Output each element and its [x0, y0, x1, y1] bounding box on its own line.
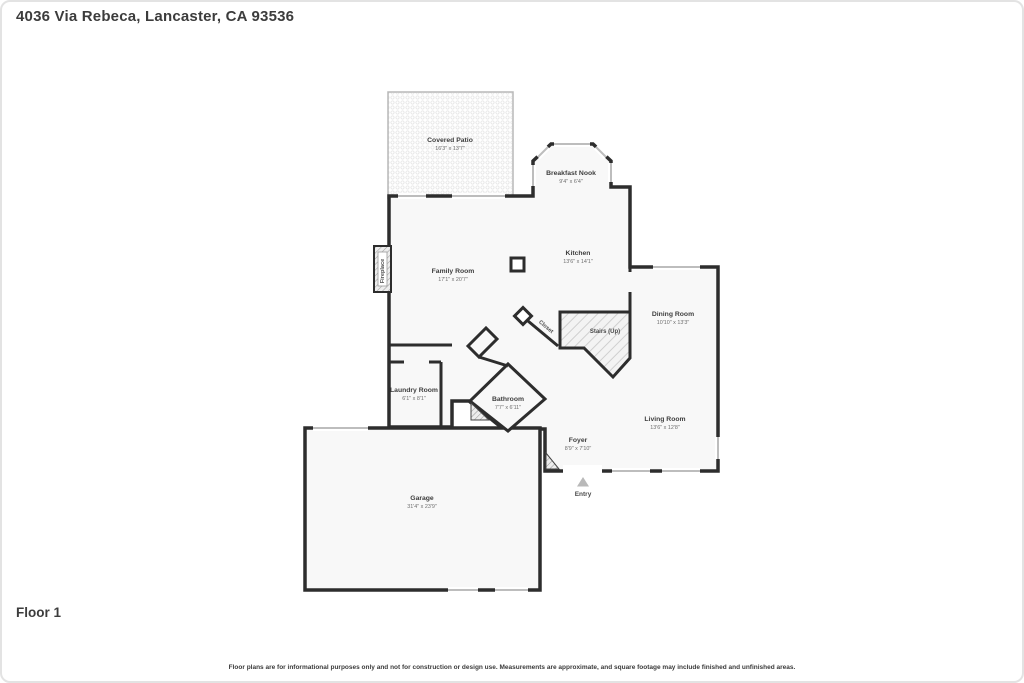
entry-arrow-icon — [577, 477, 589, 487]
room-label-breakfast-nook: Breakfast Nook — [546, 170, 596, 177]
room-label-bathroom: Bathroom — [492, 396, 524, 403]
entry-label: Entry — [575, 491, 592, 498]
room-label-kitchen: Kitchen — [566, 250, 591, 257]
room-dims-family-room: 17'1" x 20'7" — [438, 277, 468, 283]
floor-plan-svg: Covered Patio 16'3" x 13'7" Breakfast No… — [0, 0, 1024, 683]
disclaimer: Floor plans are for informational purpos… — [0, 664, 1024, 671]
room-dims-kitchen: 13'6" x 14'1" — [563, 259, 593, 265]
room-dims-laundry-room: 6'1" x 8'1" — [402, 396, 426, 402]
room-label-foyer: Foyer — [569, 437, 588, 444]
room-dims-covered-patio: 16'3" x 13'7" — [435, 146, 465, 152]
patio-floor — [388, 92, 513, 198]
covered-patio-area — [388, 92, 513, 198]
room-label-living-room: Living Room — [644, 416, 685, 423]
room-label-family-room: Family Room — [432, 268, 475, 275]
room-dims-dining-room: 10'10" x 13'3" — [657, 320, 690, 326]
stairs-label: Stairs (Up) — [590, 329, 620, 335]
room-dims-breakfast-nook: 9'4" x 6'4" — [559, 179, 583, 185]
entry-opening — [563, 465, 602, 477]
room-dims-living-room: 13'6" x 12'8" — [650, 425, 680, 431]
room-label-dining-room: Dining Room — [652, 311, 694, 318]
fireplace-label: Fireplace — [380, 259, 386, 284]
room-label-covered-patio: Covered Patio — [427, 137, 473, 144]
room-label-laundry-room: Laundry Room — [390, 387, 438, 394]
floor-label: Floor 1 — [16, 605, 61, 620]
room-label-garage: Garage — [410, 495, 434, 502]
room-dims-garage: 31'4" x 23'9" — [407, 504, 437, 510]
room-dims-foyer: 8'9" x 7'10" — [565, 446, 592, 452]
room-dims-bathroom: 7'7" x 6'11" — [495, 405, 521, 411]
wall-post-square — [511, 258, 524, 271]
